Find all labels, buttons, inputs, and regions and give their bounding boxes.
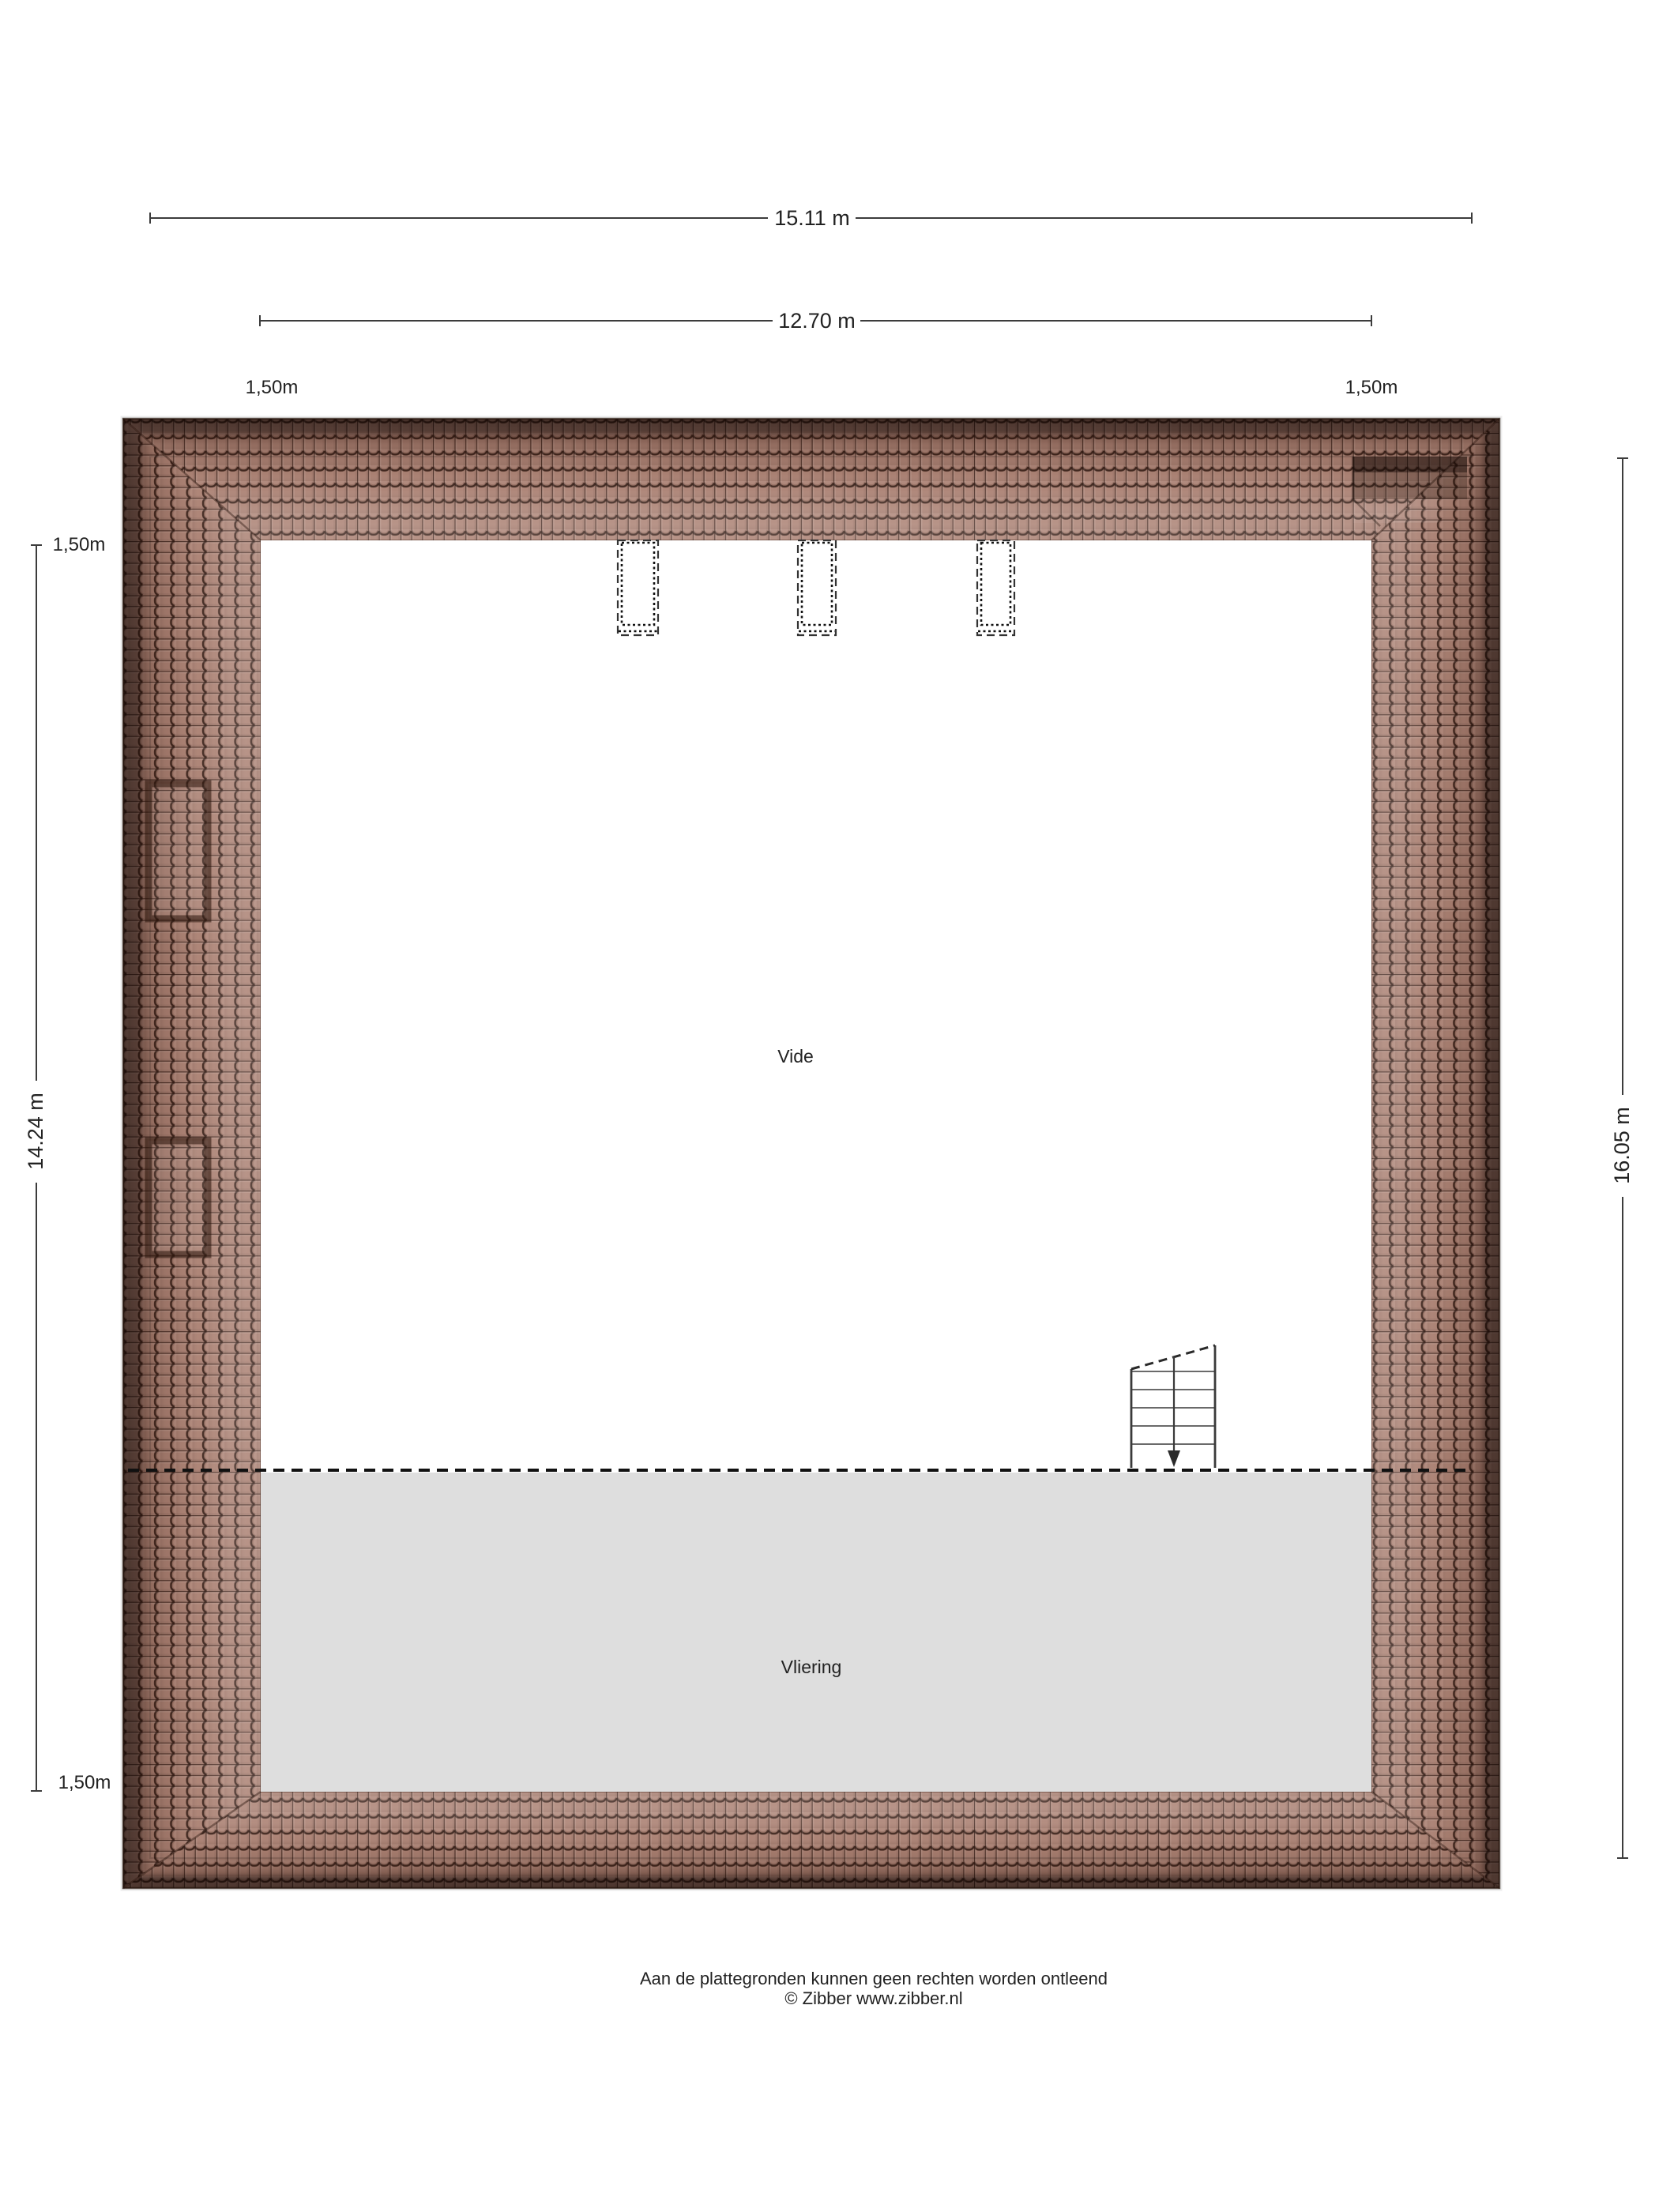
svg-text:© Zibber www.zibber.nl: © Zibber www.zibber.nl <box>784 1988 962 2008</box>
svg-text:Vide: Vide <box>777 1046 814 1066</box>
svg-text:Vliering: Vliering <box>781 1657 842 1677</box>
svg-text:1,50m: 1,50m <box>246 377 299 398</box>
svg-text:12.70 m: 12.70 m <box>778 309 856 333</box>
svg-text:16.05 m: 16.05 m <box>1610 1107 1634 1184</box>
svg-text:1,50m: 1,50m <box>53 534 106 555</box>
svg-text:14.24 m: 14.24 m <box>24 1093 47 1170</box>
svg-text:1,50m: 1,50m <box>1345 377 1398 398</box>
svg-text:Aan de plattegronden kunnen ge: Aan de plattegronden kunnen geen rechten… <box>640 1969 1108 1988</box>
svg-text:1,50m: 1,50m <box>58 1772 111 1793</box>
svg-text:15.11 m: 15.11 m <box>774 206 850 230</box>
